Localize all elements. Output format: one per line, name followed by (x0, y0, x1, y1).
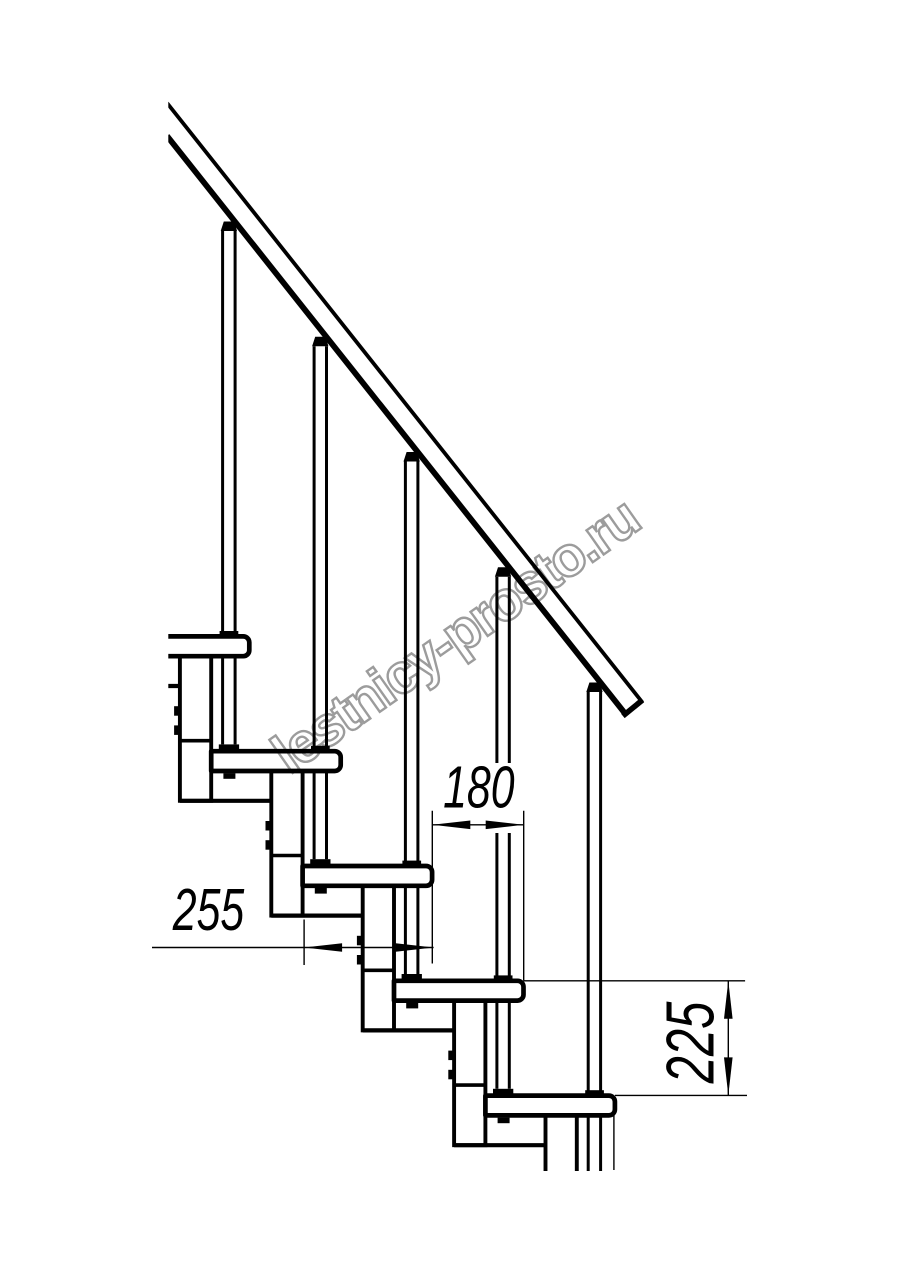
svg-text:225: 225 (652, 1001, 729, 1084)
svg-text:255: 255 (172, 876, 244, 943)
svg-text:180: 180 (443, 753, 515, 820)
